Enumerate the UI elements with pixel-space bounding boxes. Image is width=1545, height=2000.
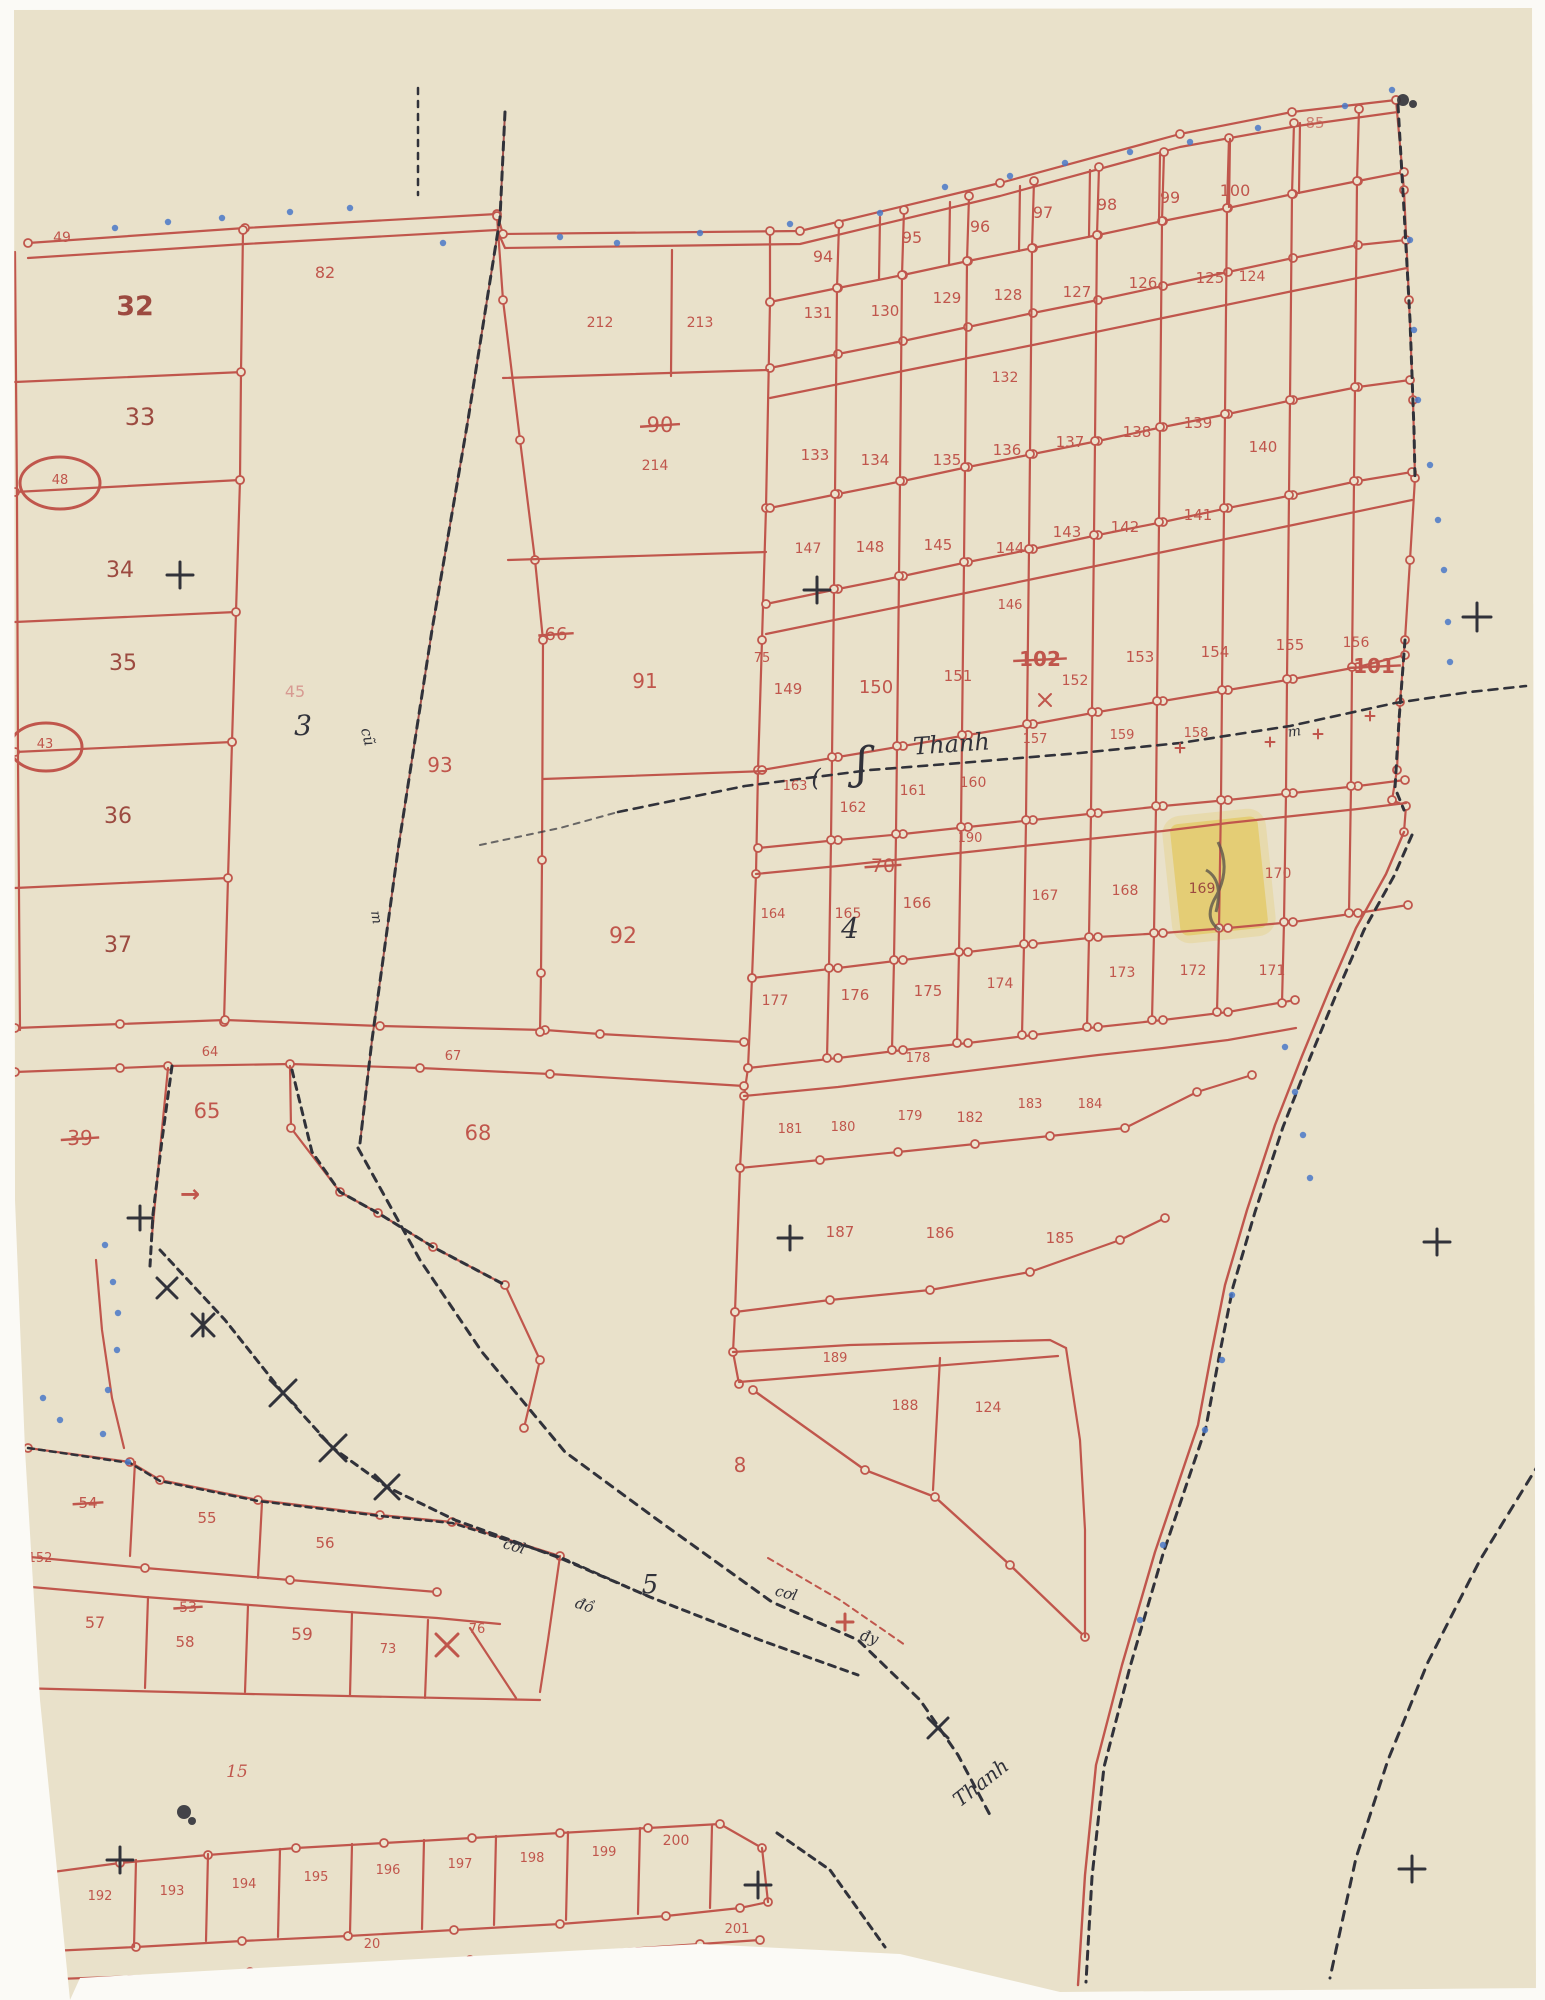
label-group: 155 <box>1276 636 1305 654</box>
label-group: 182 <box>957 1110 984 1126</box>
parcel-label-169: 169 <box>1189 881 1216 897</box>
blue-boundary-dot <box>1219 1357 1225 1363</box>
parcel-label-76: 76 <box>469 1622 486 1637</box>
blue-boundary-dot <box>877 210 883 216</box>
blue-boundary-dot <box>942 184 948 190</box>
blue-boundary-dot <box>1160 1542 1166 1548</box>
vertex-node <box>224 874 232 882</box>
vertex-node <box>766 227 774 235</box>
parcel-label-153: 153 <box>1126 648 1155 666</box>
label-group: 198 <box>520 1851 545 1866</box>
vertex-node <box>292 1844 300 1852</box>
parcel-label-179: 179 <box>898 1109 923 1124</box>
vertex-node <box>1350 477 1358 485</box>
parcel-label-180: 180 <box>831 1120 856 1135</box>
vertex-node <box>1176 130 1184 138</box>
parcel-label-187: 187 <box>826 1223 855 1241</box>
parcel-label-144: 144 <box>996 539 1025 557</box>
parcel-label-m: m <box>1287 723 1302 741</box>
label-group: 167 <box>1032 888 1059 904</box>
vertex-node <box>796 227 804 235</box>
vertex-node <box>1220 504 1228 512</box>
parcel-label-141: 141 <box>1184 506 1213 524</box>
parcel-label-155: 155 <box>1276 636 1305 654</box>
vertex-node <box>1156 423 1164 431</box>
label-group: 58 <box>175 1633 194 1651</box>
parcel-label-68: 68 <box>465 1121 492 1145</box>
label-group: 173 <box>1109 965 1136 981</box>
vertex-node <box>1153 697 1161 705</box>
blue-boundary-dot <box>165 219 171 225</box>
divider-212-213 <box>671 250 672 376</box>
parcel-label-130: 130 <box>871 302 900 320</box>
vertex-node <box>899 956 907 964</box>
vertex-node <box>221 1016 229 1024</box>
label-group: 98 <box>1097 195 1117 214</box>
vertex-node <box>766 504 774 512</box>
label-group: 75 <box>754 651 771 666</box>
vertex-node <box>1160 148 1168 156</box>
vertex-node <box>953 1039 961 1047</box>
ink-blob <box>1397 94 1409 106</box>
vertex-node <box>1288 108 1296 116</box>
label-group: 197 <box>448 1857 473 1872</box>
parcel-label-201: 201 <box>725 1922 750 1937</box>
parcel-label-73: 73 <box>380 1642 397 1657</box>
label-group: 171 <box>1259 963 1286 979</box>
vertex-node <box>1087 809 1095 817</box>
label-group: 168 <box>1112 883 1139 899</box>
vertex-node <box>1291 996 1299 1004</box>
parcel-label-158: 158 <box>1184 726 1209 741</box>
vertex-node <box>1155 518 1163 526</box>
vertex-node <box>1351 383 1359 391</box>
label-group: 154 <box>1201 643 1230 661</box>
vertex-node <box>416 1064 424 1072</box>
parcel-label-143: 143 <box>1053 523 1082 541</box>
label-group: 194 <box>232 1877 257 1892</box>
parcel-label-178: 178 <box>906 1051 931 1066</box>
parcel-label-94: 94 <box>813 247 833 266</box>
blue-boundary-dot <box>787 221 793 227</box>
parcel-label-167: 167 <box>1032 888 1059 904</box>
label-group: 196 <box>376 1863 401 1878</box>
parcel-label-192: 192 <box>88 1889 113 1904</box>
vertex-node <box>1280 918 1288 926</box>
vertex-node <box>892 830 900 838</box>
vertex-node <box>1088 708 1096 716</box>
vertex-node <box>825 964 833 972</box>
parcel-label-140: 140 <box>1249 438 1278 456</box>
parcel-label-194: 194 <box>232 1877 257 1892</box>
vertex-node <box>116 1020 124 1028</box>
parcel-label-177: 177 <box>762 993 789 1009</box>
parcel-label-154: 154 <box>1201 643 1230 661</box>
parcel-label-126: 126 <box>1129 274 1158 292</box>
blue-boundary-dot <box>1389 87 1395 93</box>
label-group: 3 <box>294 709 312 742</box>
label-group: 156 <box>1343 635 1370 651</box>
vertex-node <box>834 964 842 972</box>
label-group: 37 <box>104 933 132 958</box>
label-group: 178 <box>906 1051 931 1066</box>
vertex-node <box>662 1912 670 1920</box>
label-group: 176 <box>841 986 870 1004</box>
blue-boundary-dot <box>697 230 703 236</box>
vertex-node <box>1150 929 1158 937</box>
vertex-node <box>433 1588 441 1596</box>
parcel-label-163: 163 <box>783 779 808 794</box>
label-group: 57 <box>85 1613 105 1632</box>
vertex-node <box>1030 177 1038 185</box>
parcel-label-8: 8 <box>734 1453 747 1477</box>
vertex-node <box>141 1564 149 1572</box>
parcel-label-33: 33 <box>125 403 156 431</box>
vertex-node <box>965 192 973 200</box>
vertex-node <box>1388 796 1396 804</box>
label-group: 158 <box>1184 726 1209 741</box>
parcel-label-56: 56 <box>315 1534 334 1552</box>
vertex-node <box>116 1064 124 1072</box>
vertex-node <box>964 948 972 956</box>
ink-blob <box>1409 100 1417 108</box>
parcel-label-157: 157 <box>1023 732 1048 747</box>
parcel-label-75: 75 <box>754 651 771 666</box>
parcel-label-184: 184 <box>1078 1097 1103 1112</box>
parcel-label-152: 152 <box>1062 673 1089 689</box>
vertex-node <box>758 636 766 644</box>
vertex-node <box>1355 105 1363 113</box>
blue-boundary-dot <box>1415 397 1421 403</box>
parcel-label-131: 131 <box>804 304 833 322</box>
vertex-node <box>834 1054 842 1062</box>
vertex-node <box>556 1920 564 1928</box>
toprow-divider <box>1089 170 1090 236</box>
parcel-label-175: 175 <box>914 982 943 1000</box>
parcel-label-4: 4 <box>840 912 859 945</box>
label-group: → <box>180 1180 200 1208</box>
vertex-node <box>754 844 762 852</box>
label-group: 188 <box>892 1398 919 1414</box>
scanned-map-page: 8594959697989910013113012912812712612512… <box>0 0 1545 2000</box>
label-group: 192 <box>88 1889 113 1904</box>
label-group: 187 <box>826 1223 855 1241</box>
blue-boundary-dot <box>1445 619 1451 625</box>
label-group: 99 <box>1160 188 1180 207</box>
label-group: 137 <box>1056 433 1085 451</box>
vertex-node <box>1159 929 1167 937</box>
blue-boundary-dot <box>1300 1132 1306 1138</box>
parcel-label-43: 43 <box>37 737 54 752</box>
label-group: 181 <box>778 1122 803 1137</box>
label-group: 130 <box>871 302 900 320</box>
vertex-node <box>1213 1008 1221 1016</box>
blue-boundary-dot <box>1435 517 1441 523</box>
label-group: 177 <box>762 993 789 1009</box>
label-group: 133 <box>801 446 830 464</box>
parcel-label-55: 55 <box>197 1509 216 1527</box>
parcel-label-196: 196 <box>376 1863 401 1878</box>
blue-boundary-dot <box>1441 567 1447 573</box>
label-group: m <box>367 909 385 925</box>
parcel-label-159: 159 <box>1110 728 1135 743</box>
parcel-label-197: 197 <box>448 1857 473 1872</box>
label-group: 185 <box>1046 1229 1075 1247</box>
parcel-label-150: 150 <box>859 677 893 698</box>
label-group: Thanh <box>912 727 990 760</box>
parcel-label-65: 65 <box>194 1099 221 1123</box>
parcel-label-149: 149 <box>774 680 803 698</box>
vertex-node <box>731 1308 739 1316</box>
vertex-node <box>556 1829 564 1837</box>
label-group: 45 <box>285 682 305 701</box>
vertex-node <box>1093 231 1101 239</box>
label-group: 91 <box>632 669 657 693</box>
blue-boundary-dot <box>115 1310 121 1316</box>
parcel-label-138: 138 <box>1123 423 1152 441</box>
vertex-node <box>1248 1071 1256 1079</box>
label-group: 100 <box>1220 181 1251 200</box>
label-group: 82 <box>315 263 335 282</box>
label-group: 73 <box>380 1642 397 1657</box>
vertex-node <box>1221 410 1229 418</box>
label-group: 161 <box>900 783 927 799</box>
parcel-label-→: → <box>180 1180 200 1208</box>
vertex-node <box>1218 686 1226 694</box>
parcel-label-195: 195 <box>304 1870 329 1885</box>
vertex-node <box>834 350 842 358</box>
label-group: 142 <box>1111 518 1140 536</box>
parcel-label-20: 20 <box>364 1937 381 1952</box>
vertex-node <box>1282 789 1290 797</box>
blue-boundary-dot <box>57 1417 63 1423</box>
blue-boundary-dot <box>114 1347 120 1353</box>
parcel-label-85: 85 <box>1305 114 1324 132</box>
vertex-node <box>890 956 898 964</box>
parcel-label-3: 3 <box>294 709 312 742</box>
vertex-node <box>1288 190 1296 198</box>
vertex-node <box>963 257 971 265</box>
label-group: 33 <box>125 403 156 431</box>
label-group: 190 <box>958 831 983 846</box>
vertex-node <box>1018 1031 1026 1039</box>
label-group: 195 <box>304 1870 329 1885</box>
vertex-node <box>1020 940 1028 948</box>
parcel-label-59: 59 <box>291 1625 313 1645</box>
vertex-node <box>536 1028 544 1036</box>
vertex-node <box>499 296 507 304</box>
label-group: 8 <box>734 1453 747 1477</box>
parcel-label-92: 92 <box>609 924 637 949</box>
label-group: 5 <box>642 1570 659 1600</box>
parcel-label-133: 133 <box>801 446 830 464</box>
vertex-node <box>766 298 774 306</box>
parcel-label-146: 146 <box>998 598 1023 613</box>
label-group: 153 <box>1126 648 1155 666</box>
label-group: 65 <box>194 1099 221 1123</box>
vertex-node <box>1289 254 1297 262</box>
vertex-node <box>756 1936 764 1944</box>
label-group: 212 <box>587 315 614 331</box>
label-group: 138 <box>1123 423 1152 441</box>
parcel-label-170: 170 <box>1265 866 1292 882</box>
vertex-node <box>1028 244 1036 252</box>
vertex-node <box>1083 1023 1091 1031</box>
vertex-node <box>1401 776 1409 784</box>
vertex-node <box>468 1834 476 1842</box>
vertex-node <box>287 1124 295 1132</box>
label-group: 68 <box>465 1121 492 1145</box>
parcel-label-183: 183 <box>1018 1097 1043 1112</box>
vertex-node <box>1193 1088 1201 1096</box>
vertex-node <box>1290 119 1298 127</box>
vertex-node <box>1022 816 1030 824</box>
label-group: 128 <box>994 286 1023 304</box>
parcel-label-Thanh: Thanh <box>912 727 990 760</box>
blue-boundary-dot <box>1229 1292 1235 1298</box>
label-group: 15 <box>226 1762 248 1782</box>
parcel-label-67: 67 <box>445 1049 462 1064</box>
vertex-node <box>1121 1124 1129 1132</box>
blue-boundary-dot <box>102 1242 108 1248</box>
vertex-node <box>971 1140 979 1148</box>
vertex-node <box>1345 909 1353 917</box>
parcel-label-156: 156 <box>1343 635 1370 651</box>
vertex-node <box>516 436 524 444</box>
parcel-label-173: 173 <box>1109 965 1136 981</box>
blue-boundary-dot <box>1187 139 1193 145</box>
toprow-divider <box>879 217 880 279</box>
vertex-node <box>644 1824 652 1832</box>
label-group: 199 <box>592 1845 617 1860</box>
vertex-node <box>24 239 32 247</box>
parcel-label-49: 49 <box>53 230 71 246</box>
label-group: 164 <box>761 907 786 922</box>
label-group: 166 <box>903 894 932 912</box>
divider-65-68 <box>290 1066 291 1128</box>
vertex-node <box>1289 918 1297 926</box>
label-group: 214 <box>642 458 669 474</box>
vertex-node <box>1116 1236 1124 1244</box>
label-group: 169 <box>1189 881 1216 897</box>
vertex-node <box>931 1493 939 1501</box>
label-group: 201 <box>725 1922 750 1937</box>
blue-boundary-dot <box>347 205 353 211</box>
parcel-label-37: 37 <box>104 933 132 958</box>
blue-boundary-dot <box>40 1395 46 1401</box>
parcel-label-145: 145 <box>924 536 953 554</box>
vertex-node <box>286 1576 294 1584</box>
vertex-node <box>900 206 908 214</box>
vertex-node <box>1026 1268 1034 1276</box>
blue-boundary-dot <box>1202 1427 1208 1433</box>
vertex-node <box>964 323 972 331</box>
parcel-label-124: 124 <box>1239 269 1266 285</box>
parcel-label-174: 174 <box>987 976 1014 992</box>
label-group: 213 <box>687 315 714 331</box>
vertex-node <box>1159 282 1167 290</box>
vertex-node <box>736 1904 744 1912</box>
vertex-node <box>740 1082 748 1090</box>
vertex-node <box>380 1839 388 1847</box>
ink-blob <box>177 1805 191 1819</box>
label-group: 160 <box>960 775 987 791</box>
blue-boundary-dot <box>1427 462 1433 468</box>
parcel-label-182: 182 <box>957 1110 984 1126</box>
vertex-node <box>1286 396 1294 404</box>
blue-boundary-dot <box>110 1279 116 1285</box>
parcel-label-132: 132 <box>992 370 1019 386</box>
parcel-label-48: 48 <box>52 473 69 488</box>
label-group: 125 <box>1196 269 1225 287</box>
vertex-node <box>237 368 245 376</box>
label-group: 175 <box>914 982 943 1000</box>
blue-boundary-dot <box>1342 103 1348 109</box>
parcel-label-45: 45 <box>285 682 305 701</box>
vertex-node <box>536 1356 544 1364</box>
vertex-node <box>520 1424 528 1432</box>
label-group: 124 <box>975 1400 1002 1416</box>
label-group: 143 <box>1053 523 1082 541</box>
blue-boundary-dot <box>1447 659 1453 665</box>
parcel-label-5: 5 <box>642 1570 659 1600</box>
label-group: 20 <box>364 1937 381 1952</box>
label-group: 151 <box>944 667 973 685</box>
parcel-label-32: 32 <box>116 291 154 322</box>
label-group: 136 <box>993 441 1022 459</box>
label-group: 157 <box>1023 732 1048 747</box>
vertex-node <box>748 974 756 982</box>
label-group: 4 <box>840 912 859 945</box>
vertex-node <box>736 1164 744 1172</box>
vertex-node <box>833 284 841 292</box>
parcel-label-171: 171 <box>1259 963 1286 979</box>
toprow-divider <box>1019 186 1020 251</box>
parcel-label-160: 160 <box>960 775 987 791</box>
vertex-node <box>893 742 901 750</box>
parcel-label-93: 93 <box>427 753 452 777</box>
vertex-node <box>888 1046 896 1054</box>
parcel-label-134: 134 <box>861 451 890 469</box>
parcel-label-124: 124 <box>975 1400 1002 1416</box>
label-group: 55 <box>197 1509 216 1527</box>
parcel-label-125: 125 <box>1196 269 1225 287</box>
label-group: 186 <box>926 1224 955 1242</box>
parcel-label-147: 147 <box>795 541 822 557</box>
vertex-node <box>1046 1132 1054 1140</box>
vertex-node <box>762 600 770 608</box>
parcel-label-185: 185 <box>1046 1229 1075 1247</box>
parcel-label-189: 189 <box>823 1351 848 1366</box>
label-group: 56 <box>315 1534 334 1552</box>
vertex-node <box>899 337 907 345</box>
vertex-node <box>957 823 965 831</box>
label-group: 76 <box>469 1622 486 1637</box>
vertex-node <box>1224 268 1232 276</box>
vertex-node <box>1094 1023 1102 1031</box>
blue-boundary-dot <box>1007 173 1013 179</box>
parcel-label-82: 82 <box>315 263 335 282</box>
parcel-label-57: 57 <box>85 1613 105 1632</box>
toprow-divider <box>1299 123 1300 193</box>
label-group: 129 <box>933 289 962 307</box>
vertex-node <box>740 1038 748 1046</box>
label-group: 102 <box>1013 647 1067 671</box>
label-group: 101 <box>1347 654 1401 678</box>
parcel-label-181: 181 <box>778 1122 803 1137</box>
parcel-label-36: 36 <box>104 804 132 829</box>
vertex-node <box>827 836 835 844</box>
